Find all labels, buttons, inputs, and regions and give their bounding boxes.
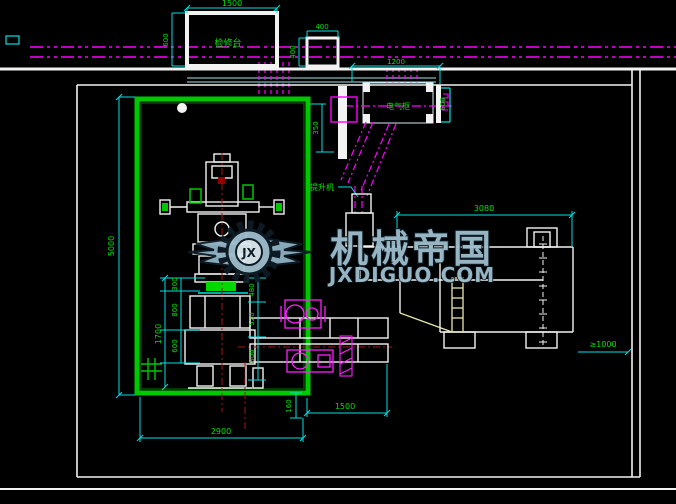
corner-mark [6, 36, 19, 44]
dim-platform-width: 1500 [222, 0, 242, 8]
dim-machine-length: 3080 [474, 204, 494, 213]
dimension-texts: 1500 600 400 400 1200 600 350 5000 1700 … [107, 0, 617, 436]
cad-drawing: 检修台 电气柜 提升机 [0, 0, 676, 504]
dim-outlet-gap: 160 [285, 399, 293, 412]
dim-room-width: 2900 [211, 427, 231, 436]
hatched-strip [340, 336, 352, 376]
dim-bench-run: 1500 [335, 402, 355, 411]
main-conveyor-centerlines [30, 47, 676, 57]
dim-service-clearance: ≥1000 [589, 340, 616, 349]
watermark-monogram: JX [241, 246, 256, 260]
watermark: JX 机械帝国 JXDIGUO.COM [188, 225, 495, 287]
cabinet: 电气柜 [344, 83, 452, 123]
incline-conveyor [341, 122, 396, 213]
dim-wall-gap: 350 [312, 121, 320, 134]
dim-press-seg-a: 300 [171, 277, 179, 290]
pump-assembly-upper [281, 300, 325, 328]
dim-chute-width: 400 [315, 23, 328, 31]
dim-press-total: 1700 [154, 324, 163, 344]
press-green-bar [206, 282, 236, 291]
dim-center-a: 480 [248, 283, 256, 296]
chute-outline [307, 38, 338, 66]
wall-knob [177, 103, 187, 113]
dim-room-height: 5000 [107, 236, 116, 256]
dim-center-c: 800 [248, 349, 256, 362]
arm-cap-right [276, 203, 282, 211]
dim-cabinet-side: 600 [439, 97, 447, 110]
cabinet-label: 电气柜 [386, 101, 410, 111]
watermark-site: JXDIGUO.COM [327, 263, 495, 287]
dim-press-seg-b: 800 [171, 303, 179, 316]
cad-canvas: 检修台 电气柜 提升机 [0, 0, 676, 504]
machine-ladder [539, 236, 547, 348]
dim-platform-depth: 600 [162, 33, 170, 46]
dim-chute-height: 400 [289, 45, 297, 58]
platform-label: 检修台 [214, 37, 241, 49]
door-mark [141, 358, 162, 380]
dim-press-seg-c: 600 [171, 339, 179, 352]
dim-cabinet-width: 1200 [387, 58, 405, 66]
arm-cap-left [162, 203, 168, 211]
incline-conveyor-label: 提升机 [310, 182, 334, 192]
dim-center-b: 520 [248, 312, 256, 325]
